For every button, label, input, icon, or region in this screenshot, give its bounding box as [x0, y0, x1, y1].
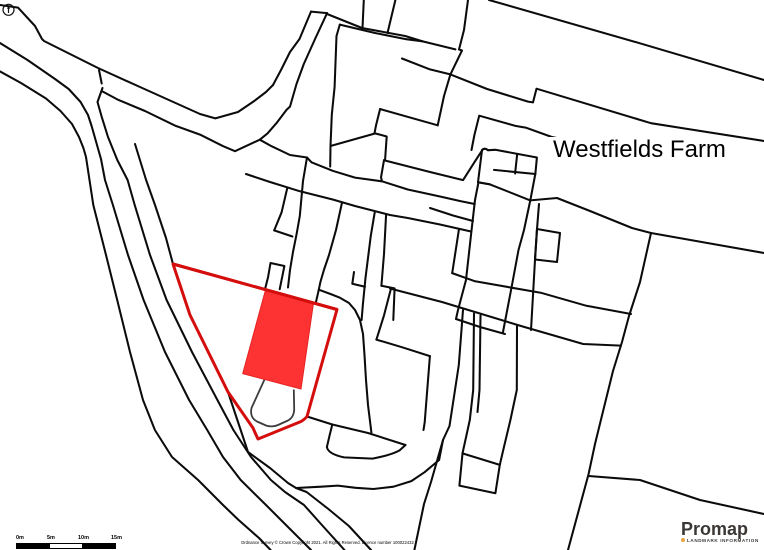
svg-text:Westfields Farm: Westfields Farm — [553, 136, 726, 163]
